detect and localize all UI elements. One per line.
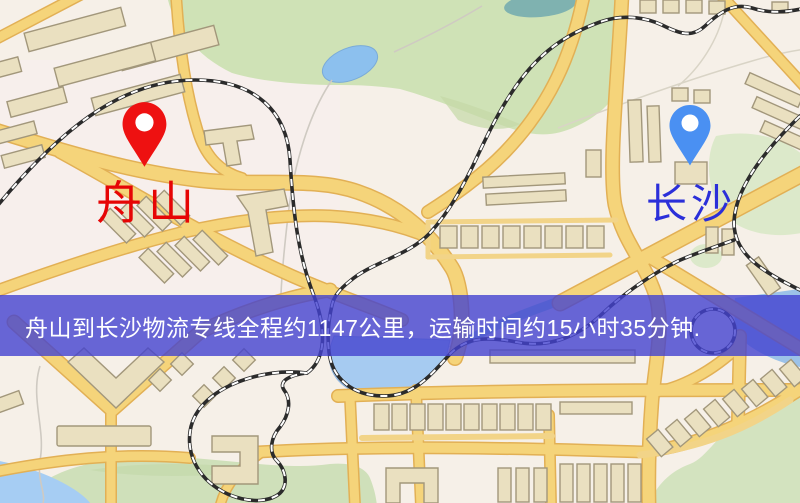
zhoushan-pin-hole (135, 113, 153, 131)
changsha-pin-hole (682, 115, 699, 132)
map-canvas: 舟山 长沙 (0, 0, 800, 503)
route-info-text: 舟山到长沙物流专线全程约1147公里，运输时间约15小时35分钟. (0, 309, 701, 343)
zhoushan-label: 舟山 (96, 178, 200, 229)
map-screenshot: 舟山 长沙 舟山到长沙物流专线全程约1147公里，运输时间约15小时35分钟. (0, 0, 800, 503)
changsha-label: 长沙 (646, 181, 736, 227)
route-info-banner: 舟山到长沙物流专线全程约1147公里，运输时间约15小时35分钟. (0, 295, 800, 356)
